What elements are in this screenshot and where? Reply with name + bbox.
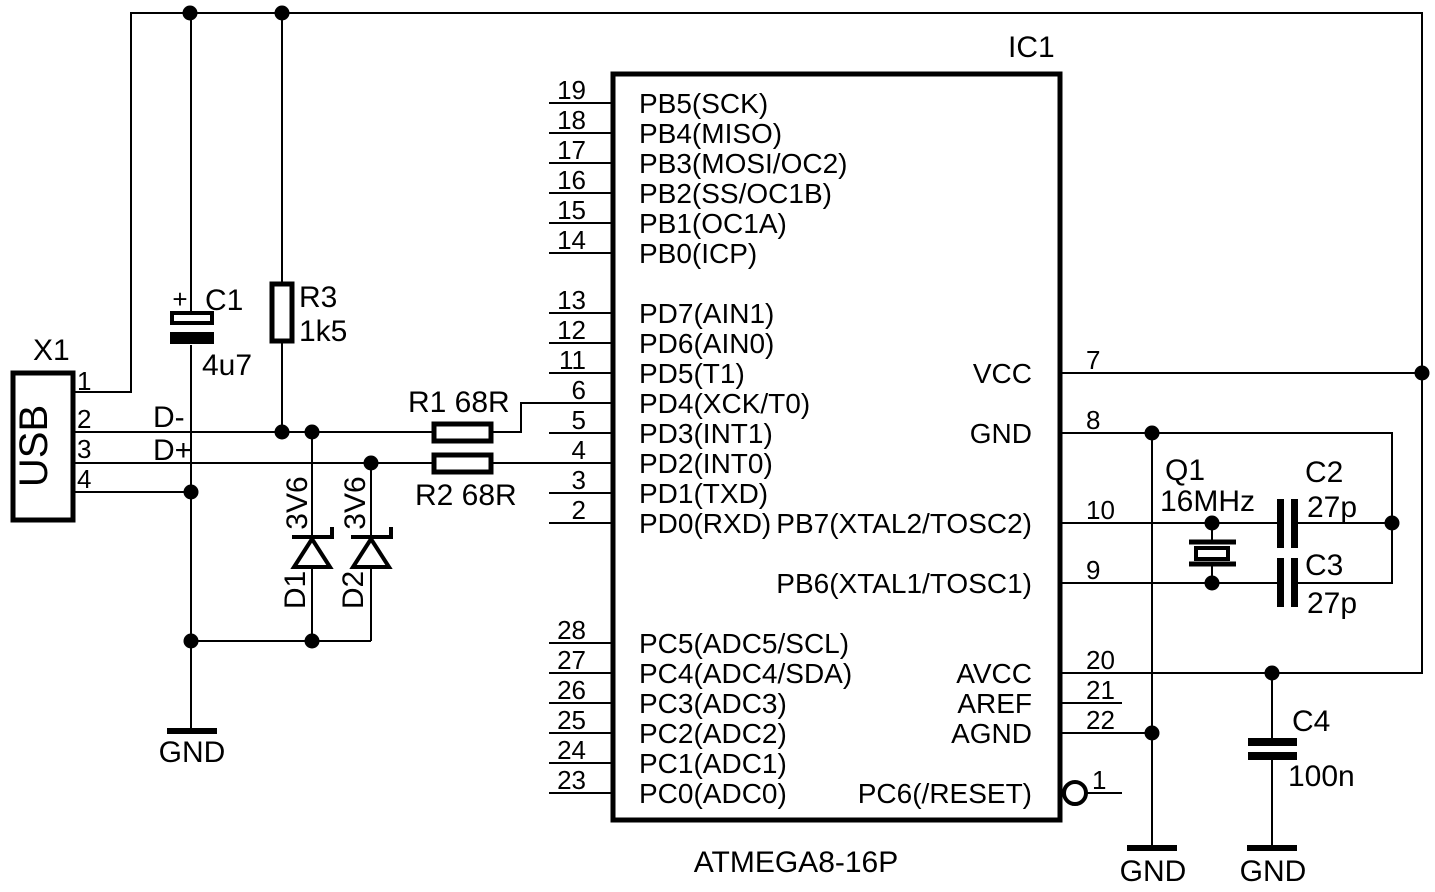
ic-pin-number: 1 xyxy=(1092,765,1106,795)
r1-label: R1 68R xyxy=(408,386,510,419)
crystal-body xyxy=(1196,548,1228,559)
c2-plate-right xyxy=(1291,499,1298,548)
ic-pin-label: PD1(TXD) xyxy=(639,478,768,509)
ic-pin-number: 27 xyxy=(557,645,586,675)
reset-pin-circle xyxy=(1064,782,1086,804)
junction-dot xyxy=(364,456,379,471)
r3-body xyxy=(272,284,292,341)
ic-pin-number: 26 xyxy=(557,675,586,705)
usb-pin-number: 2 xyxy=(77,404,91,434)
c4-value-label: 100n xyxy=(1288,760,1355,793)
ic-pin-label: PD4(XCK/T0) xyxy=(639,388,810,419)
junction-dot xyxy=(183,6,198,21)
gnd-label-left: GND xyxy=(159,736,226,769)
ic-pin-number: 18 xyxy=(557,105,586,135)
ic-pin-number: 22 xyxy=(1086,705,1115,735)
c2-value-label: 27p xyxy=(1307,491,1357,524)
c1-value-label: 4u7 xyxy=(202,349,252,382)
ic-pin-number: 24 xyxy=(557,735,586,765)
gnd-bar-middle xyxy=(1127,845,1177,851)
ic-pin-label: AGND xyxy=(951,718,1032,749)
q1-ref-label: Q1 xyxy=(1165,454,1205,487)
gnd-bar-left xyxy=(167,728,217,734)
gnd-bar-right xyxy=(1247,845,1297,851)
junction-dot xyxy=(305,425,320,440)
usb-pin-number: 4 xyxy=(77,464,91,494)
ic-pin-number: 3 xyxy=(572,465,586,495)
ic-pin-label: PB0(ICP) xyxy=(639,238,757,269)
ic-pin-number: 11 xyxy=(559,345,586,375)
d2-value-label: 3V6 xyxy=(339,476,372,529)
ic-pin-label: GND xyxy=(970,418,1032,449)
c1-ref-label: C1 xyxy=(205,284,243,317)
c2-plate-left xyxy=(1277,499,1284,548)
junction-dot xyxy=(1145,726,1160,741)
c3-ref-label: C3 xyxy=(1305,549,1343,582)
c2-ref-label: C2 xyxy=(1305,456,1343,489)
ic-pin-number: 7 xyxy=(1086,345,1100,375)
ic-pin-number: 2 xyxy=(572,495,586,525)
ic-pin-label: PB7(XTAL2/TOSC2) xyxy=(776,508,1032,539)
d1-value-label: 3V6 xyxy=(281,476,314,529)
junction-dot xyxy=(184,485,199,500)
c4-ref-label: C4 xyxy=(1292,705,1330,738)
gnd-label-right: GND xyxy=(1240,855,1307,888)
ic-pin-number: 21 xyxy=(1086,675,1115,705)
usb-ref-label: X1 xyxy=(33,334,70,367)
ic-pin-number: 28 xyxy=(557,615,586,645)
d2-ref-label: D2 xyxy=(337,571,370,609)
ic-pin-label: PD7(AIN1) xyxy=(639,298,774,329)
ic-pin-number: 14 xyxy=(557,225,586,255)
c1-polarity-mark: + xyxy=(172,284,187,314)
junction-dot xyxy=(1265,666,1280,681)
ic-pin-label: PC3(ADC3) xyxy=(639,688,787,719)
r3-value-label: 1k5 xyxy=(299,315,347,348)
q1-value-label: 16MHz xyxy=(1160,485,1255,518)
junction-dot xyxy=(1415,366,1430,381)
ic-pin-label: PD3(INT1) xyxy=(639,418,773,449)
ic-pin-label: PB4(MISO) xyxy=(639,118,782,149)
ic-pin-label: PD6(AIN0) xyxy=(639,328,774,359)
ic-pin-label: PC0(ADC0) xyxy=(639,778,787,809)
d-plus-signal-label: D+ xyxy=(153,434,192,467)
junction-dot xyxy=(1145,426,1160,441)
usb-pin-number: 3 xyxy=(77,434,91,464)
c3-plate-left xyxy=(1277,558,1284,607)
ic-pin-label: PB3(MOSI/OC2) xyxy=(639,148,847,179)
ic-pin-number: 19 xyxy=(557,75,586,105)
ic-pin-number: 25 xyxy=(557,705,586,735)
ic-part-label: ATMEGA8-16P xyxy=(694,846,899,879)
junction-dot xyxy=(1385,516,1400,531)
d2-body xyxy=(353,539,389,567)
ic-pin-number: 9 xyxy=(1086,555,1100,585)
r2-label: R2 68R xyxy=(415,479,517,512)
ic-pin-label: PC1(ADC1) xyxy=(639,748,787,779)
d-minus-signal-label: D- xyxy=(153,401,185,434)
ic-pin-number: 4 xyxy=(572,435,586,465)
junction-dot xyxy=(1205,576,1220,591)
ic-pin-label: PD2(INT0) xyxy=(639,448,773,479)
d1-ref-label: D1 xyxy=(279,571,312,609)
ic-pin-number: 10 xyxy=(1086,495,1115,525)
ic-pin-label: PC2(ADC2) xyxy=(639,718,787,749)
ic-pin-number: 8 xyxy=(1086,405,1100,435)
ic-pin-label: VCC xyxy=(973,358,1032,389)
junction-dot xyxy=(305,634,320,649)
r2-body xyxy=(434,455,491,472)
ic-pin-number: 17 xyxy=(557,135,586,165)
ic-pin-label: PC6(/RESET) xyxy=(858,778,1032,809)
r1-body xyxy=(434,424,491,441)
c4-plate-bottom xyxy=(1248,752,1297,760)
ic-pin-number: 20 xyxy=(1086,645,1115,675)
ic-pin-number: 16 xyxy=(557,165,586,195)
ic-pins: 19PB5(SCK)18PB4(MISO)17PB3(MOSI/OC2)16PB… xyxy=(549,75,1115,809)
c3-value-label: 27p xyxy=(1307,587,1357,620)
ic-pin-number: 6 xyxy=(572,375,586,405)
junction-dot xyxy=(184,634,199,649)
r3-ref-label: R3 xyxy=(299,281,337,314)
ic-pin-label: AVCC xyxy=(956,658,1032,689)
c3-plate-right xyxy=(1291,558,1298,607)
ic-pin-label: PD0(RXD) xyxy=(639,508,771,539)
gnd-label-middle: GND xyxy=(1120,855,1187,888)
ic-pin-label: PC4(ADC4/SDA) xyxy=(639,658,852,689)
junction-dot xyxy=(275,425,290,440)
junction-dot xyxy=(275,6,290,21)
ic-pin-label: PC5(ADC5/SCL) xyxy=(639,628,849,659)
ic-pin-label: PD5(T1) xyxy=(639,358,745,389)
ic-pin-number: 12 xyxy=(557,315,586,345)
schematic-canvas: X1 USB 1 2 3 4 D- D+ + C1 4u7 R3 1k5 R1 … xyxy=(0,0,1435,892)
ic-pin-number: 15 xyxy=(557,195,586,225)
ic-pin-label: PB5(SCK) xyxy=(639,88,768,119)
usb-connector-label: USB xyxy=(12,405,56,487)
usb-pin-number: 1 xyxy=(77,366,91,396)
ic-pin-label: PB1(OC1A) xyxy=(639,208,787,239)
ic-pin-number: 23 xyxy=(557,765,586,795)
c1-plate-negative xyxy=(170,332,214,344)
ic-pin-label: AREF xyxy=(957,688,1032,719)
d1-body xyxy=(294,539,330,567)
ic-pin-number: 13 xyxy=(557,285,586,315)
ic-pin-number: 5 xyxy=(572,405,586,435)
ic-pin-label: PB6(XTAL1/TOSC1) xyxy=(776,568,1032,599)
c4-plate-top xyxy=(1248,738,1297,746)
ic-pin-label: PB2(SS/OC1B) xyxy=(639,178,832,209)
ic-ref-label: IC1 xyxy=(1008,31,1055,64)
